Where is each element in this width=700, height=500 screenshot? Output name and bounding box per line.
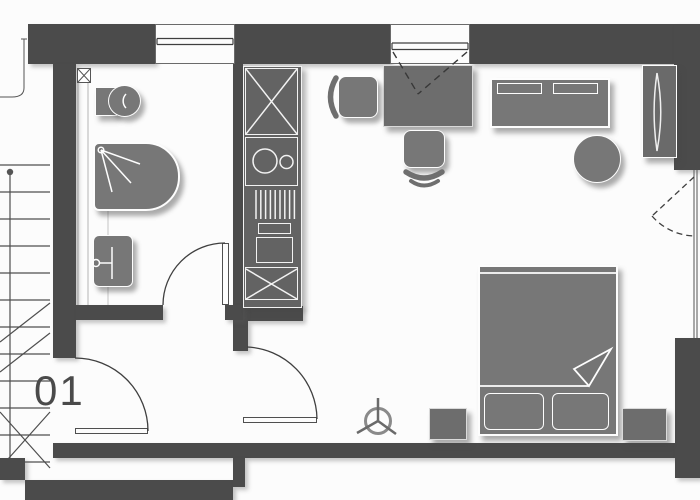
washbasin bbox=[93, 235, 133, 287]
right-wall-lower bbox=[675, 338, 700, 478]
desk bbox=[383, 65, 473, 127]
installation-shaft-box bbox=[77, 68, 91, 83]
top-wall-right bbox=[470, 24, 700, 64]
bottom-strip-wall bbox=[25, 480, 233, 500]
kitchen-sink-unit bbox=[245, 137, 298, 186]
bathroom-door-swing bbox=[163, 243, 225, 305]
unit-number-label: 01 bbox=[34, 370, 85, 412]
shower bbox=[93, 142, 180, 211]
sofa-cushion-right bbox=[553, 83, 598, 94]
office-chair-bottom-seat bbox=[403, 130, 445, 168]
nightstand-left bbox=[429, 408, 467, 440]
pillow-left bbox=[484, 393, 544, 430]
window-left bbox=[155, 24, 235, 64]
bathroom-bottom-wall-stub bbox=[225, 305, 243, 320]
hall-door-swing bbox=[247, 347, 317, 419]
tall-cabinet-bottom bbox=[245, 267, 298, 300]
dashed-door-swing bbox=[652, 177, 694, 236]
stair-walk-start bbox=[7, 169, 13, 175]
office-chair-left-seat bbox=[338, 76, 378, 118]
tall-cabinet-top bbox=[245, 68, 298, 135]
office-chair-bottom-back bbox=[406, 172, 442, 178]
bottom-left-step-wall bbox=[0, 458, 25, 480]
stairs bbox=[0, 165, 50, 468]
wardrobe bbox=[642, 65, 677, 158]
cooktop bbox=[258, 223, 291, 234]
nightstand-right bbox=[622, 408, 667, 441]
oven bbox=[256, 237, 293, 263]
toilet-bowl bbox=[108, 85, 141, 117]
ceiling-fan-icon bbox=[357, 398, 396, 434]
top-wall-middle bbox=[235, 24, 390, 64]
exterior-thin-line bbox=[0, 39, 27, 97]
hall-door-leaf bbox=[243, 417, 317, 423]
hall-partition-stub bbox=[233, 321, 248, 351]
pillow-right bbox=[552, 393, 609, 430]
bottom-middle-stub bbox=[233, 458, 245, 487]
entry-door-leaf bbox=[75, 428, 148, 434]
right-boundary-line bbox=[694, 170, 697, 338]
bottom-wall bbox=[53, 443, 677, 458]
window-right bbox=[390, 24, 470, 64]
sofa-cushion-left bbox=[497, 83, 542, 94]
kitchen-bottom-stub bbox=[233, 306, 303, 321]
floor-plan: 01 bbox=[0, 0, 700, 500]
right-wall-upper bbox=[674, 24, 700, 170]
office-chair-bottom-back-2 bbox=[411, 181, 438, 186]
entry-door-swing bbox=[75, 358, 148, 431]
bathroom-bottom-wall bbox=[76, 305, 163, 320]
stair-break-lines bbox=[0, 303, 50, 372]
bathroom-door-leaf bbox=[222, 243, 229, 305]
left-wall bbox=[53, 64, 76, 358]
office-chair-left-back bbox=[331, 78, 337, 116]
top-wall-left bbox=[28, 24, 155, 64]
round-table bbox=[573, 135, 621, 183]
kitchen-back-wall bbox=[233, 64, 243, 308]
